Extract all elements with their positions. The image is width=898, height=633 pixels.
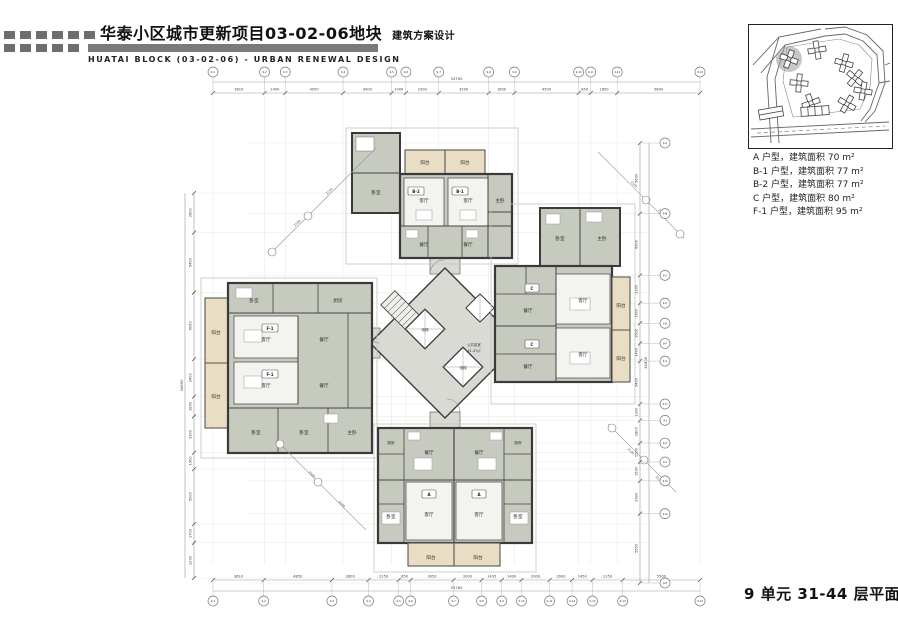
grid-bubble-label: 9-9 — [500, 599, 505, 603]
dim-value: 4900 — [635, 239, 639, 249]
room-label-living: 客厅 — [578, 297, 588, 304]
grid-bubble-label: 9-N — [663, 512, 668, 516]
grid-bubble-label: 9-K — [663, 441, 668, 445]
legend-item-a: A 户型，建筑面积 70 m² — [753, 152, 864, 166]
dim-value: 1850 — [599, 88, 609, 92]
dim-total-label: 34950 — [179, 379, 184, 392]
room-label-elevator: 电梯 — [459, 365, 467, 370]
room-label-balcony: 阳台 — [211, 393, 221, 400]
diag-dim: 1500 — [307, 470, 316, 479]
grid-bubble-label: 9-H — [663, 402, 668, 406]
dim-total-label: 34700 — [450, 76, 463, 81]
room-label-master: 主卧 — [495, 197, 505, 204]
dim-value: 1450 — [578, 575, 588, 579]
grid-bubble-label: 9-10 — [518, 599, 524, 603]
dim-value: 1600 — [556, 575, 566, 579]
room-label-bedroom: 卧室 — [299, 429, 309, 436]
core-lobby-area: 41.47㎡ — [467, 348, 481, 353]
unit-tag-f1: F-1 — [266, 372, 273, 377]
grid-bubble-label: 9-9 — [512, 70, 517, 74]
grid-bubble-label: 9-3 — [330, 599, 335, 603]
room-label-master: 主卧 — [597, 235, 607, 242]
dim-value: 2600 — [346, 575, 356, 579]
dim-value: 3610 — [234, 575, 244, 579]
inset-buildings — [777, 40, 873, 117]
dim-value: 1600 — [635, 328, 639, 338]
dim-value: 1600 — [635, 308, 639, 318]
grid-bubble-label: 9-3 — [283, 70, 288, 74]
room-label-bedroom: 卧室 — [251, 429, 261, 436]
grid-bubble-label: 9-8 — [479, 599, 484, 603]
dim-value: 1800 — [189, 401, 193, 411]
dim-total-label: 34900 — [643, 356, 648, 369]
room-label-living: 客厅 — [578, 351, 588, 358]
room-label-bedroom: 卧室 — [386, 513, 396, 520]
dim-value: 4850 — [293, 575, 303, 579]
dim-value: 1500 — [635, 447, 639, 457]
dim-value: 850 — [401, 575, 409, 579]
room-label-dining: 餐厅 — [419, 241, 429, 248]
dim-value: 5600 — [635, 173, 639, 183]
room-label-bedroom: 卧室 — [371, 189, 381, 196]
room-label-elevator: 电梯 — [421, 327, 429, 332]
dim-value: 1435 — [487, 575, 496, 579]
plan-caption: 9 单元 31-44 层平面图 — [744, 583, 894, 604]
drawing-sheet: { "header": { "title_cn": "华泰小区城市更新项目03-… — [0, 0, 898, 633]
room-label-balcony: 阳台 — [211, 329, 221, 336]
grid-bubble-label: 9-E — [663, 321, 668, 325]
grid-bubble-label: 9-F — [663, 342, 668, 346]
legend-item-b2: B-2 户型，建筑面积 77 m² — [753, 179, 864, 193]
room-label-bedroom: 卧室 — [513, 513, 523, 520]
dim-value: 1500 — [189, 456, 193, 466]
room-label-dining: 餐厅 — [523, 307, 533, 314]
room-label-balcony: 阳台 — [616, 302, 626, 309]
site-key-plan-svg — [749, 25, 890, 146]
unit-tag-c: C — [531, 286, 534, 291]
grid-bubble-label: 9-10 — [576, 70, 582, 74]
grid-bubble-label: 9-D — [663, 301, 668, 305]
dim-value: 1450 — [270, 88, 280, 92]
dim-value: 4050 — [310, 88, 320, 92]
dim-value: 850 — [581, 88, 589, 92]
dim-value: 3610 — [234, 88, 244, 92]
dim-value: 1400 — [635, 347, 639, 357]
room-label-living: 客厅 — [474, 511, 484, 518]
room-label-bedroom: 卧室 — [555, 235, 565, 242]
grid-bubble-label: 9-5 — [389, 70, 394, 74]
grid-bubble-label: 9-B — [663, 212, 668, 216]
dim-value: 3400 — [635, 377, 639, 387]
dim-value: 3600 — [189, 208, 193, 218]
site-key-plan — [748, 24, 893, 149]
room-label-living: 客厅 — [261, 382, 271, 389]
dim-value: 5800 — [654, 88, 664, 92]
grid-bubble-label: 9-1 — [211, 599, 216, 603]
wing-north — [346, 128, 518, 264]
sheet-title-cn: 华泰小区城市更新项目03-02-06地块 — [100, 24, 382, 43]
legend-item-c: C 户型，建筑面积 80 m² — [753, 193, 864, 207]
dim-value: 5000 — [189, 491, 193, 501]
room-label-dining: 餐厅 — [523, 363, 533, 370]
grid-bubble-label: 9-J — [663, 418, 667, 422]
inset-roads — [751, 27, 890, 143]
highlight-circle — [776, 46, 802, 72]
dim-value: 1700 — [189, 528, 193, 538]
inset-road-median — [757, 126, 885, 133]
dim-value: 1500 — [635, 466, 639, 476]
room-label-living: 客厅 — [424, 511, 434, 518]
room-label-dining: 餐厅 — [319, 336, 329, 343]
grid-bubble-label: 9-15 — [697, 599, 703, 603]
sheet-title-suffix: 建筑方案设计 — [392, 31, 455, 42]
grid-bubble-label: 9-12 — [614, 70, 620, 74]
legend-item-b1: B-1 户型，建筑面积 77 m² — [753, 166, 864, 180]
dim-value: 3400 — [363, 88, 373, 92]
dim-value: 2000 — [531, 575, 541, 579]
room-label-living: 客厅 — [419, 197, 429, 204]
dim-total-label: 34760 — [450, 585, 463, 590]
grid-bubble-label: 9-11 — [588, 70, 594, 74]
dim-value: 3400 — [189, 373, 193, 383]
grid-bubble-label: 9-11 — [547, 599, 553, 603]
dim-value: 2150 — [379, 575, 389, 579]
grid-bubble-label: 9-12 — [569, 599, 575, 603]
room-label-kitchen: 厨房 — [514, 440, 522, 445]
room-label-master: 主卧 — [347, 429, 357, 436]
grid-bubble-label: 9-G — [663, 359, 668, 363]
grid-bubble-label: 9-7 — [451, 599, 456, 603]
grid-bubble-label: 9-L — [663, 460, 668, 464]
deco-blocks-svg — [4, 31, 100, 53]
grid-bubble-label: 9-1 — [211, 70, 216, 74]
dim-value: 3500 — [459, 88, 469, 92]
room-label-bedroom: 卧室 — [249, 297, 259, 304]
room-label-living: 客厅 — [463, 197, 473, 204]
grid-bubble-label: 9-6 — [404, 70, 409, 74]
dim-value: 3200 — [189, 555, 193, 565]
room-label-balcony: 阳台 — [616, 355, 626, 362]
room-label-balcony: 阳台 — [420, 159, 430, 166]
dim-value: 4500 — [542, 88, 552, 92]
dim-value: 2150 — [603, 575, 613, 579]
dim-value: 2000 — [463, 575, 473, 579]
room-label-balcony: 阳台 — [473, 554, 483, 561]
room-label-balcony: 阳台 — [426, 554, 436, 561]
title-underline-bar — [88, 44, 378, 52]
grid-bubble-label: 9-C — [663, 273, 668, 277]
dim-value: 2200 — [635, 284, 639, 294]
wing-south — [374, 424, 536, 572]
dim-value: 2300 — [418, 88, 428, 92]
grid-bubble-label: 9-4 — [366, 599, 371, 603]
grid-bubble-label: 9-A — [663, 141, 668, 145]
dim-value: 3050 — [427, 575, 437, 579]
grid-bubble-label: 9-13 — [697, 70, 703, 74]
dim-value: 2600 — [635, 492, 639, 502]
grid-bubble-label: 9-4 — [341, 70, 346, 74]
unit-tag-b1: B-1 — [456, 189, 464, 194]
legend-item-f1: F-1 户型，建筑面积 95 m² — [753, 206, 864, 220]
room-label-kitchen: 厨房 — [387, 440, 395, 445]
dim-value: 5450 — [189, 257, 193, 267]
room-label-dining: 餐厅 — [474, 449, 484, 456]
floor-plan: 2150 2700 1500 2700 1500 3200 2100 3100 … — [178, 62, 718, 618]
grid-bubble-label: 9-13 — [589, 599, 595, 603]
dim-value: 1800 — [497, 88, 507, 92]
room-label-dining: 餐厅 — [424, 449, 434, 456]
grid-bubble-label: 9-M — [663, 479, 669, 483]
dim-value: 3300 — [189, 429, 193, 439]
room-label-dining: 餐厅 — [463, 241, 473, 248]
floor-plan-svg: 2150 2700 1500 2700 1500 3200 2100 3100 … — [178, 62, 718, 614]
dim-value: 1300 — [635, 407, 639, 417]
dim-value: 1400 — [507, 575, 517, 579]
grid-bubble-label: 9-2 — [262, 70, 267, 74]
dim-value: 1000 — [394, 88, 404, 92]
grid-bubble-label: 9-2 — [262, 599, 267, 603]
unit-tag-f1: F-1 — [266, 326, 273, 331]
room-label-kitchen: 厨房 — [333, 297, 343, 304]
room-label-balcony: 阳台 — [460, 159, 470, 166]
diag-dim: 3200 — [337, 500, 346, 509]
grid-bubble-label: 9-7 — [437, 70, 442, 74]
grid-bubble-label: 9-5 — [396, 599, 401, 603]
unit-type-legend: A 户型，建筑面积 70 m² B-1 户型，建筑面积 77 m² B-2 户型… — [753, 152, 864, 220]
grid-bubble-label: 9-8 — [487, 70, 492, 74]
grid-bubble-label: 9-P — [663, 581, 668, 585]
dim-value: 5500 — [635, 543, 639, 553]
dim-value: 6050 — [189, 321, 193, 331]
core-lobby-label: 公共前室 — [467, 342, 481, 347]
room-label-dining: 餐厅 — [319, 382, 329, 389]
sheet-title: 华泰小区城市更新项目03-02-06地块建筑方案设计 — [100, 20, 455, 44]
dim-value: 1800 — [635, 426, 639, 436]
header-deco-blocks — [4, 31, 100, 57]
unit-tag-c: C — [531, 342, 534, 347]
grid-bubble-label: 9-14 — [620, 599, 626, 603]
room-label-living: 客厅 — [261, 336, 271, 343]
unit-tag-b2: B-2 — [412, 189, 420, 194]
grid-bubble-label: 9-6 — [408, 599, 413, 603]
